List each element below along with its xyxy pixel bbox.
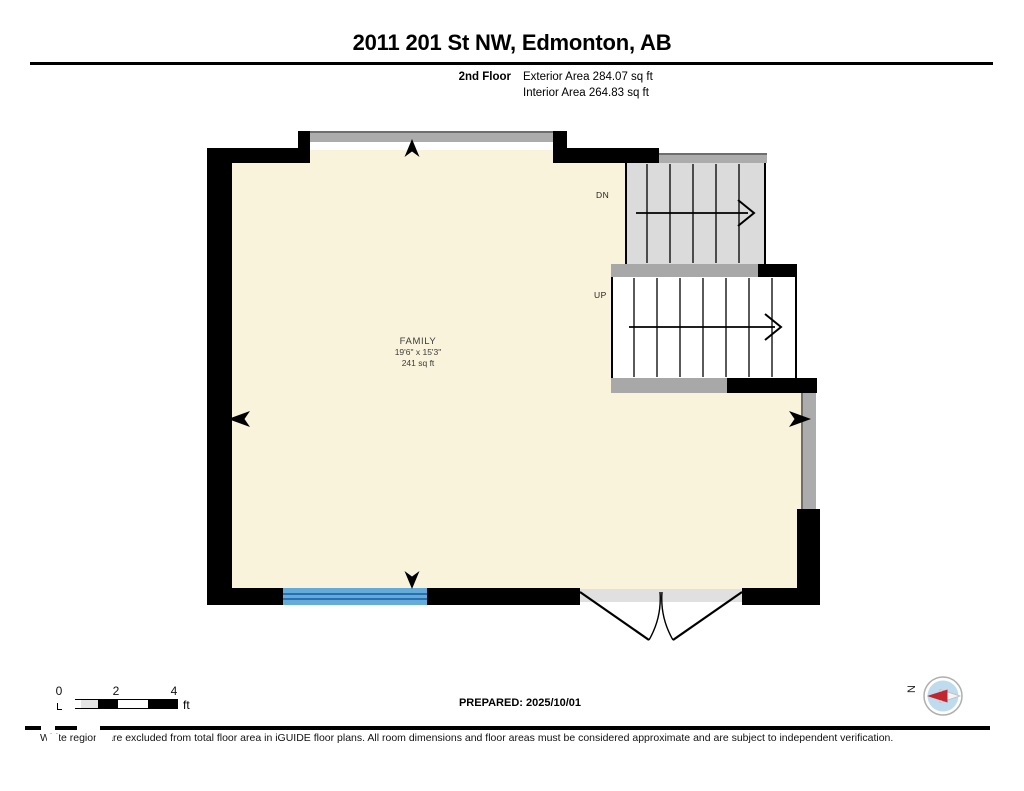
prepared-date: PREPARED: 2025/10/01 bbox=[380, 697, 660, 709]
footer-line-whiteout bbox=[77, 724, 100, 732]
room-label: FAMILY 19'6" x 15'3" 241 sq ft bbox=[342, 336, 494, 368]
north-wall-marker-icon bbox=[405, 139, 420, 157]
stairs-up-arrow bbox=[629, 314, 781, 340]
scale-unit: ft bbox=[183, 698, 190, 712]
floor-plan-page: 2011 201 St NW, Edmonton, AB 2nd Floor E… bbox=[0, 0, 1024, 791]
footer-text-whiteout bbox=[96, 734, 112, 746]
south-wall-marker-icon bbox=[405, 571, 420, 589]
compass-icon bbox=[919, 672, 967, 720]
scale-bar bbox=[57, 699, 178, 709]
stairs-down-arrow bbox=[636, 200, 754, 226]
plan-vector-overlay bbox=[0, 0, 1024, 791]
footer-divider bbox=[25, 726, 990, 730]
scale-tick-4: 4 bbox=[168, 684, 180, 698]
footer-disclaimer: White regions are excluded from total fl… bbox=[40, 732, 1000, 744]
room-dimensions: 19'6" x 15'3" bbox=[342, 347, 494, 358]
stairs-up-label: UP bbox=[594, 290, 607, 300]
scale-bar-whiteout bbox=[49, 696, 75, 713]
scale-bar-left-tick bbox=[57, 703, 62, 710]
stairs-down-label: DN bbox=[596, 190, 609, 200]
footer-line-whiteout bbox=[41, 724, 55, 732]
double-door-swing bbox=[580, 592, 742, 640]
scale-tick-2: 2 bbox=[110, 684, 122, 698]
room-name: FAMILY bbox=[342, 336, 494, 347]
room-area: 241 sq ft bbox=[342, 358, 494, 369]
west-wall-marker-icon bbox=[228, 411, 250, 427]
compass-north-label: N bbox=[906, 682, 920, 696]
footer-text-whiteout bbox=[47, 734, 59, 746]
east-wall-marker-icon bbox=[789, 411, 811, 427]
